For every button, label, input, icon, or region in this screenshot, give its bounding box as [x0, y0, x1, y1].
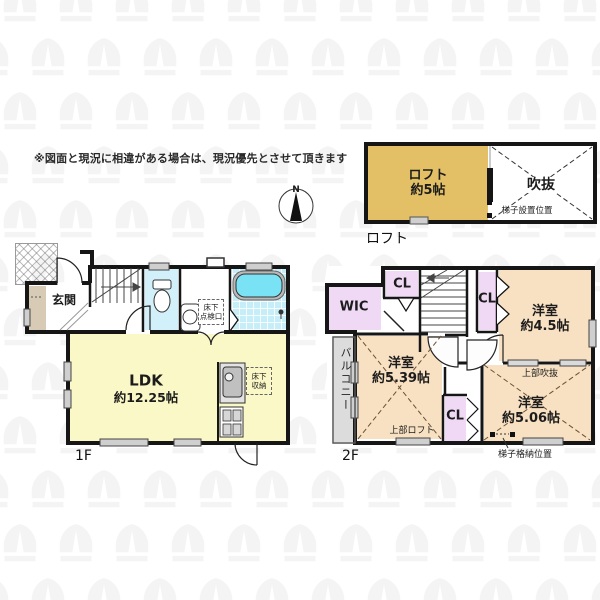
floorplan-page: ※図面と現況に相違がある場合は、現況優先とさせて頂きます N ロフト 約5帖 吹… [0, 0, 600, 600]
upper-loft-label: 上部ロフト [389, 426, 434, 436]
cl-right-label: CL [478, 293, 496, 308]
ladder-note-label: 梯子設置位置 [501, 207, 552, 217]
caption-loft: ロフト [366, 228, 408, 248]
genkan-label: 玄関 [52, 294, 76, 308]
underfloor-access-label: 床下 点検口 [198, 299, 224, 325]
loft-plan-walls [366, 144, 595, 224]
balcony-label: バルコニー [337, 347, 353, 439]
upper-void-label: 上部吹抜 [522, 369, 558, 379]
floor1-stairs [92, 268, 140, 303]
cl-top-label: CL [393, 278, 411, 293]
ldk-size-label: 約12.25帖 [114, 391, 179, 405]
ldk-name-label: LDK [129, 372, 163, 389]
ladder-storage-marks [490, 432, 515, 448]
bedroom-539-label: 洋室 約5.39帖 [372, 357, 430, 387]
underfloor-storage-label: 床下 収納 [246, 367, 272, 395]
cl-bottom-label: CL [446, 410, 464, 425]
bedroom-45-label: 洋室 約4.5帖 [520, 305, 569, 335]
loft-room-label: ロフト 約5帖 [408, 169, 447, 199]
disclaimer-text: ※図面と現況に相違がある場合は、現況優先とさせて頂きます [34, 150, 347, 166]
compass-north-label: N [292, 185, 300, 195]
floor2-stairs [421, 270, 466, 332]
floorplan-graphics [0, 0, 600, 600]
caption-1f: 1F [75, 448, 92, 464]
bedroom-506-label: 洋室 約5.06帖 [502, 397, 560, 427]
caption-2f: 2F [342, 448, 359, 464]
void-label: 吹抜 [525, 177, 557, 193]
wic-label: WIC [340, 301, 369, 316]
ladder-storage-label: 梯子格納位置 [498, 450, 552, 460]
